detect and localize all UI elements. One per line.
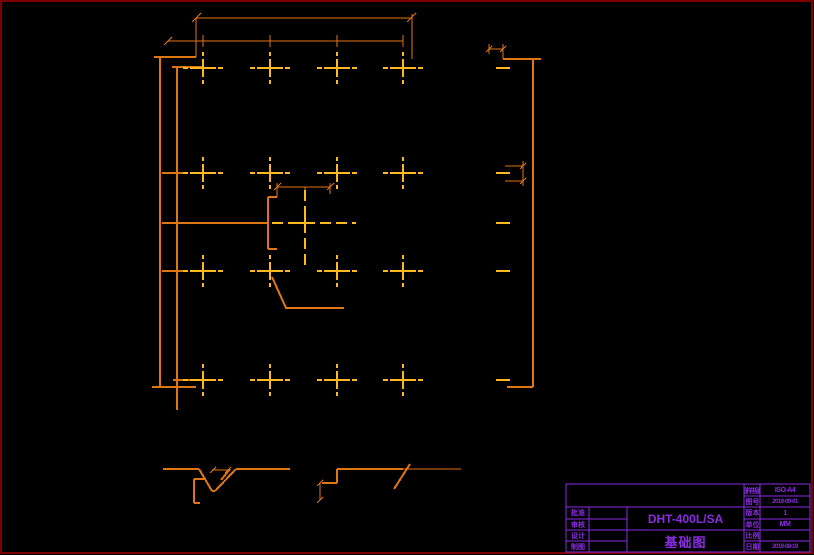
center-pocket-detail [162, 197, 277, 249]
section-detail-right-dim [317, 469, 461, 503]
center-cross [296, 214, 314, 232]
drawing-no-value: 2019-09-01 [761, 497, 809, 506]
center-centerlines [272, 190, 356, 268]
drawing-no-label: 图 号 [744, 497, 760, 506]
scale-label: 比 例 [744, 531, 760, 540]
scale-value [761, 531, 809, 540]
section-detail-right [322, 464, 410, 489]
cad-canvas [0, 0, 814, 555]
unit-label: 单 位 [744, 520, 760, 529]
plan-outline [152, 57, 541, 410]
approve-label: 批 准 [566, 508, 589, 518]
date-value: 2019-08-19 [761, 542, 809, 552]
sheet-format-value: ISO-A4 [761, 485, 809, 496]
dimension-lines [164, 13, 526, 200]
date-label: 日 期 [744, 542, 760, 552]
drawing-title: 基础图 [627, 530, 744, 552]
model-number: DHT-400L/SA [627, 507, 744, 530]
version-label: 版 本 [744, 508, 760, 518]
version-value: 1 [761, 508, 809, 518]
sheet-format-label: 图样规格 [744, 485, 760, 496]
check-label: 审 核 [566, 520, 589, 529]
unit-value: MM [761, 520, 809, 529]
draft-label: 制 图 [566, 542, 589, 552]
leader-line [272, 277, 344, 308]
section-detail-left [163, 469, 290, 503]
right-edge-tick-marks [496, 68, 510, 380]
design-label: 设 计 [566, 531, 589, 540]
cad-viewer-page: { "colors": { "bg": "#000000", "border":… [0, 0, 814, 555]
row-connectors [162, 173, 196, 380]
